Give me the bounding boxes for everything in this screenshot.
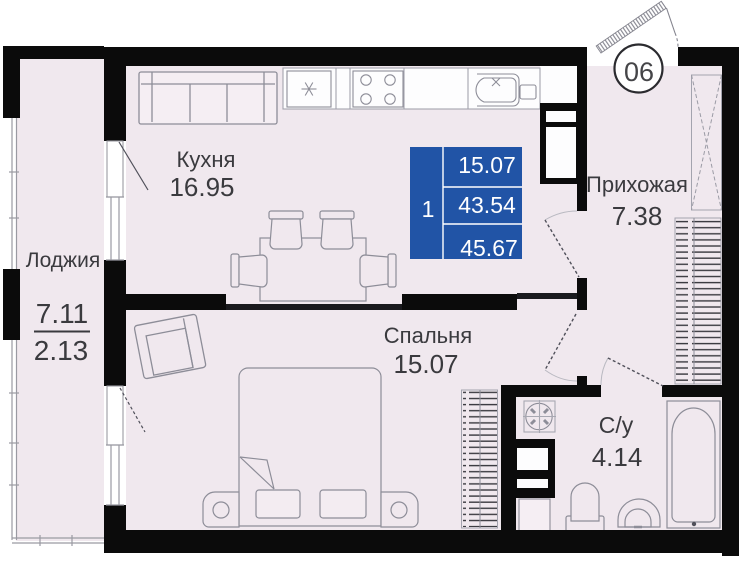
svg-text:7.11: 7.11 <box>36 298 88 329</box>
svg-text:15.07: 15.07 <box>458 152 516 178</box>
svg-text:43.54: 43.54 <box>458 192 516 218</box>
svg-text:С/у: С/у <box>599 412 634 438</box>
svg-text:06: 06 <box>624 57 654 87</box>
svg-text:Кухня: Кухня <box>177 147 236 172</box>
svg-text:Спальня: Спальня <box>384 323 472 348</box>
svg-text:45.67: 45.67 <box>460 235 518 261</box>
svg-text:4.14: 4.14 <box>592 442 643 472</box>
svg-text:7.38: 7.38 <box>612 201 663 231</box>
svg-text:16.95: 16.95 <box>169 172 234 202</box>
svg-text:15.07: 15.07 <box>393 349 458 379</box>
svg-text:Лоджия: Лоджия <box>26 249 100 272</box>
svg-text:Прихожая: Прихожая <box>586 172 688 197</box>
svg-text:1: 1 <box>422 196 435 222</box>
svg-text:2.13: 2.13 <box>34 335 89 366</box>
